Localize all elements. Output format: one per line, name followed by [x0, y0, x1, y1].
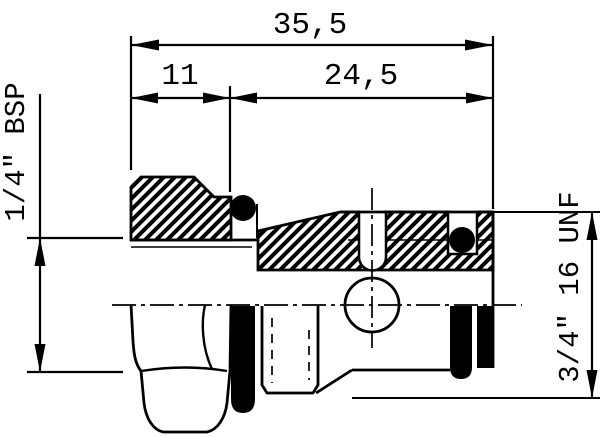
arrow [131, 93, 158, 104]
dim-text-bsp-thread: 1/4" BSP [0, 82, 33, 221]
arrow [35, 238, 46, 266]
arrow [131, 40, 159, 51]
arrow [466, 93, 493, 104]
dim-text-unf-thread: 3/4" 16 UNF [554, 191, 587, 382]
technical-drawing-page: 35,5 11 24,5 1/4" BSP 3/4" 16 UNF [0, 0, 600, 437]
fitting-cross-section-drawing: 35,5 11 24,5 1/4" BSP 3/4" 16 UNF [0, 0, 600, 437]
bsp-oring-section [230, 195, 256, 221]
bsp-oring-band [231, 306, 255, 413]
hex-section-hatched [131, 177, 231, 240]
arrow [465, 40, 493, 51]
arrow [35, 344, 46, 372]
arrow [203, 93, 230, 104]
thread-runout-chamfer [316, 370, 352, 393]
arrow [230, 93, 257, 104]
arrow [587, 212, 598, 240]
unf-oring-section [449, 227, 475, 253]
dim-text-hex-length: 11 [161, 59, 198, 94]
unf-oring-band [450, 306, 472, 379]
arrow [587, 370, 598, 398]
dim-text-thread-length: 24,5 [324, 59, 398, 94]
thread-end-band [477, 306, 492, 368]
dim-text-total-length: 35,5 [273, 8, 347, 43]
